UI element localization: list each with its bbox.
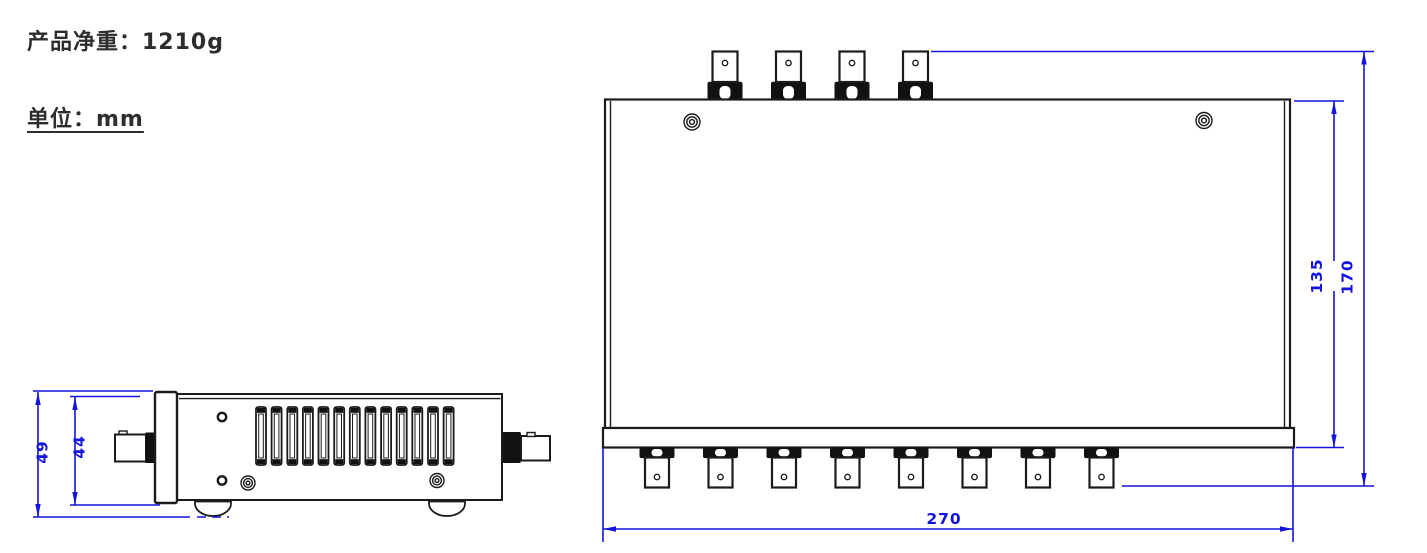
- bnc-connector: [835, 52, 870, 101]
- bnc-connector: [703, 448, 738, 488]
- dimension-arrow: [1331, 435, 1336, 448]
- vent-slot: [256, 407, 266, 465]
- bnc-connector: [830, 448, 865, 488]
- dim-overall-depth: 170: [1339, 259, 1357, 294]
- bnc-connector: [1084, 448, 1119, 488]
- dimension-arrow: [72, 397, 77, 410]
- vent-slot: [350, 407, 360, 465]
- dim-body-height: 44: [71, 435, 89, 459]
- dim-overall-height: 49: [34, 440, 52, 464]
- dimension-arrow: [1361, 52, 1366, 65]
- dimension-arrow: [1361, 473, 1366, 486]
- foot-right: [429, 502, 465, 517]
- vent-slot: [397, 407, 407, 465]
- top-view: 135 170 270: [603, 52, 1374, 543]
- vent-slot: [272, 407, 282, 465]
- dimension-arrow: [1331, 101, 1336, 114]
- dim-body-depth: 135: [1308, 258, 1326, 293]
- bnc-connector: [708, 52, 743, 101]
- vent-slot: [319, 407, 329, 465]
- top-front-panel: [603, 428, 1294, 448]
- vent-slot: [287, 407, 297, 465]
- front-panel: [155, 392, 177, 503]
- bnc-connector: [894, 448, 929, 488]
- front-bnc-body: [115, 435, 146, 462]
- side-view: 49 44: [33, 391, 550, 517]
- top-body: [605, 100, 1290, 429]
- vent-slot: [334, 407, 344, 465]
- dimension-arrow: [1280, 526, 1293, 531]
- rear-bnc-lug: [527, 433, 535, 437]
- dim-width: 270: [926, 510, 961, 528]
- dimension-arrow: [603, 526, 616, 531]
- dimension-arrow: [35, 504, 40, 517]
- bnc-connector: [898, 52, 933, 101]
- bnc-connector: [640, 448, 675, 488]
- technical-drawing: 49 44: [0, 0, 1427, 553]
- vent-slot: [381, 407, 391, 465]
- vent-slot: [303, 407, 313, 465]
- rear-bnc-knurl: [502, 432, 521, 463]
- foot-left: [195, 502, 231, 517]
- bnc-connector: [1021, 448, 1056, 488]
- vent-slot: [365, 407, 375, 465]
- vent-slot: [412, 407, 422, 465]
- bnc-connector: [767, 448, 802, 488]
- bnc-connector: [771, 52, 806, 101]
- bottom-connectors: [640, 448, 1120, 488]
- bnc-connector: [957, 448, 992, 488]
- top-connectors: [708, 52, 934, 101]
- dimension-arrow: [35, 392, 40, 405]
- panel-hole-top: [218, 413, 226, 421]
- dimension-arrow: [72, 492, 77, 505]
- panel-hole-bottom: [218, 476, 226, 484]
- rear-bnc-body: [521, 436, 550, 461]
- vent-slot: [428, 407, 438, 465]
- vent-slot: [444, 407, 454, 465]
